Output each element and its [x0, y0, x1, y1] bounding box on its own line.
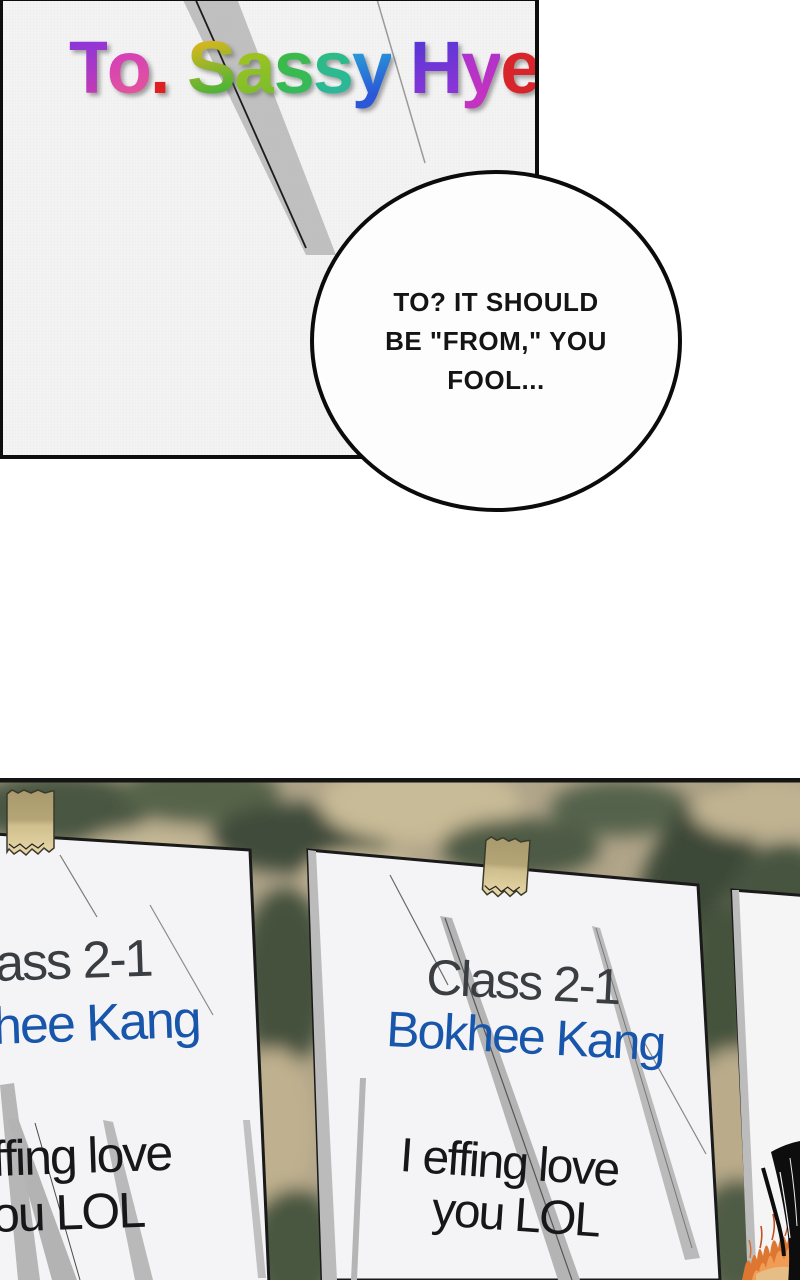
tape-middle	[482, 837, 530, 899]
speech-bubble: TO? IT SHOULD BE "FROM," YOU FOOL...	[310, 170, 682, 512]
rainbow-letter: S	[187, 26, 234, 109]
rainbow-letter: .	[150, 26, 169, 109]
bubble-line-3: FOOL...	[385, 361, 607, 400]
rainbow-letter: a	[234, 26, 273, 109]
rainbow-letter: s	[274, 26, 313, 109]
speech-bubble-text: TO? IT SHOULD BE "FROM," YOU FOOL...	[385, 283, 607, 400]
bubble-line-1: TO? IT SHOULD	[385, 283, 607, 322]
paper-middle-message-line2: you LOL	[430, 1182, 601, 1249]
paper-left-message-line1: ffing love	[0, 1124, 172, 1188]
rainbow-letter: o	[107, 26, 150, 109]
paper-left-class-line: ass 2-1	[0, 929, 153, 994]
paper-left-message-line2: ou LOL	[0, 1181, 145, 1244]
rainbow-letter: H	[410, 26, 461, 109]
paper-left-name-line: hee Kang	[0, 990, 201, 1057]
board-top-border	[0, 778, 800, 783]
rainbow-letter: y	[352, 26, 391, 109]
tape-left	[7, 790, 54, 855]
rainbow-letter	[168, 26, 187, 109]
bubble-line-2: BE "FROM," YOU	[385, 322, 607, 361]
rainbow-letter	[391, 26, 410, 109]
rainbow-letter: e	[500, 26, 539, 109]
rainbow-letter: y	[461, 26, 500, 109]
letter-title-rainbow-text: To. Sassy Hyeok	[69, 25, 539, 110]
rainbow-letter: s	[313, 26, 352, 109]
rainbow-letter: T	[69, 26, 107, 109]
comic-page: To. Sassy Hyeok TO? IT SHOULD BE "FROM,"…	[0, 0, 800, 1280]
